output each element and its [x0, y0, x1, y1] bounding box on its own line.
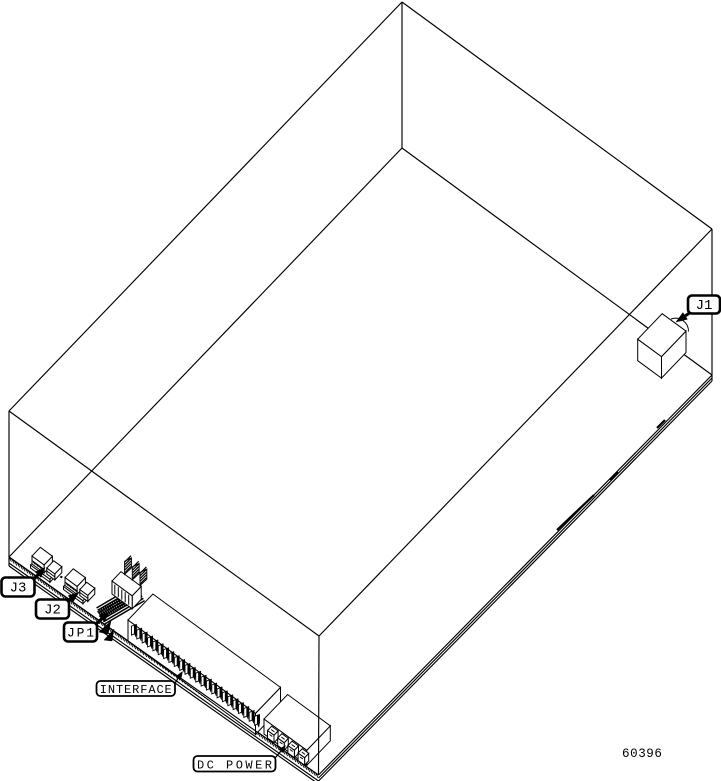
svg-text:JP1: JP1	[67, 626, 94, 641]
svg-text:INTERFACE: INTERFACE	[100, 683, 172, 697]
svg-text:J2: J2	[44, 603, 61, 619]
svg-text:60396: 60396	[622, 747, 663, 761]
svg-text:J3: J3	[10, 581, 27, 597]
svg-text:J1: J1	[696, 298, 713, 314]
